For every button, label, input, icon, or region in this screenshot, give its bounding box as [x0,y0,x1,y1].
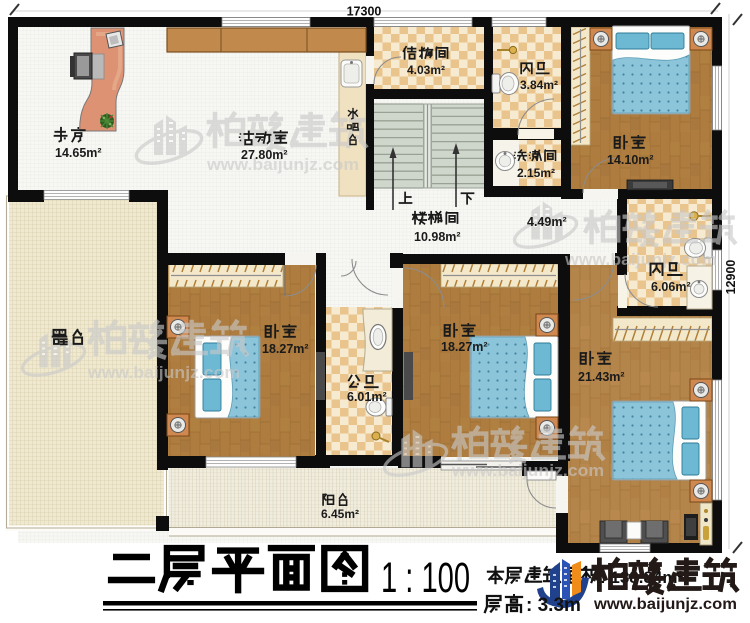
svg-text:6.06m²: 6.06m² [651,280,691,294]
svg-text:www.baijunjz.com: www.baijunjz.com [451,462,604,480]
svg-text:: 3.3m: : 3.3m [526,595,581,616]
svg-text:2.15m²: 2.15m² [517,166,555,180]
svg-text:17300: 17300 [347,5,382,19]
svg-text:27.80m²: 27.80m² [241,148,288,162]
svg-text:18.27m²: 18.27m² [441,340,488,354]
svg-text:4.03m²: 4.03m² [407,63,445,77]
svg-text:3.84m²: 3.84m² [520,78,558,92]
svg-text:10.98m²: 10.98m² [414,230,461,244]
svg-text:14.65m²: 14.65m² [55,146,102,160]
svg-text:www.baijunjz.com: www.baijunjz.com [593,596,737,613]
svg-text:www.baijunjz.com: www.baijunjz.com [87,364,240,382]
svg-text:6.01m²: 6.01m² [347,390,387,404]
svg-text:6.45m²: 6.45m² [321,507,359,521]
svg-text:www.baijunjz.com: www.baijunjz.com [564,251,717,269]
svg-text:21.43m²: 21.43m² [578,370,625,384]
svg-text:4.49m²: 4.49m² [527,215,567,229]
svg-text:1 : 100: 1 : 100 [381,554,470,602]
svg-text:18.27m²: 18.27m² [262,342,309,356]
svg-text:14.10m²: 14.10m² [607,153,654,167]
svg-text:12900: 12900 [724,260,738,295]
